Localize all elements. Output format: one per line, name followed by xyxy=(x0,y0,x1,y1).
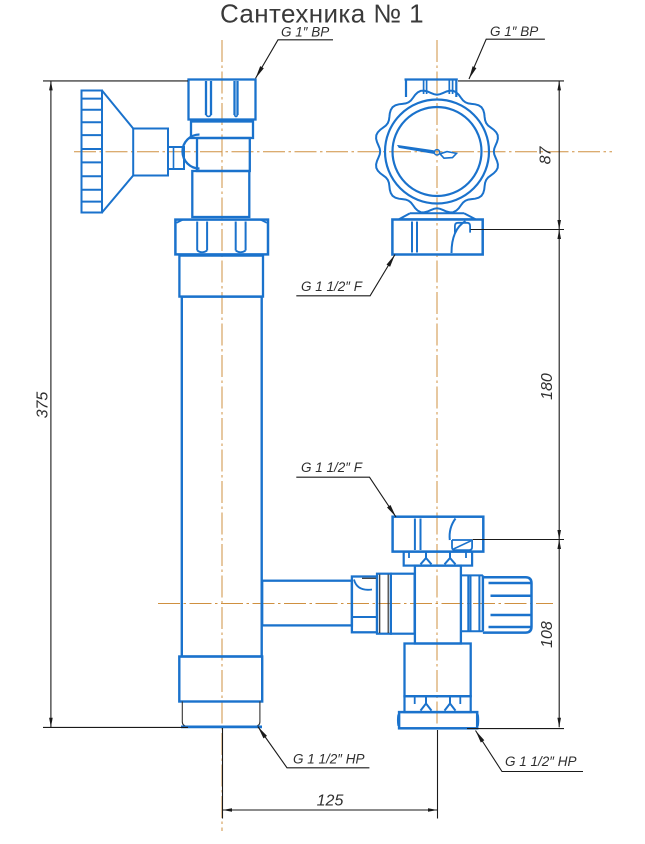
svg-text:G 1 1/2″ F: G 1 1/2″ F xyxy=(301,279,363,294)
svg-text:G 1 1/2″ НР: G 1 1/2″ НР xyxy=(505,754,577,769)
svg-text:G 1″ ВР: G 1″ ВР xyxy=(490,24,538,39)
svg-text:180: 180 xyxy=(539,373,556,400)
svg-text:G 1 1/2″ F: G 1 1/2″ F xyxy=(301,460,363,475)
svg-text:125: 125 xyxy=(317,793,344,810)
svg-text:G 1 1/2″ НР: G 1 1/2″ НР xyxy=(293,752,365,767)
svg-text:108: 108 xyxy=(539,621,556,648)
svg-text:375: 375 xyxy=(35,392,52,419)
svg-text:Сантехника № 1: Сантехника № 1 xyxy=(220,0,424,29)
svg-text:87: 87 xyxy=(538,146,555,165)
